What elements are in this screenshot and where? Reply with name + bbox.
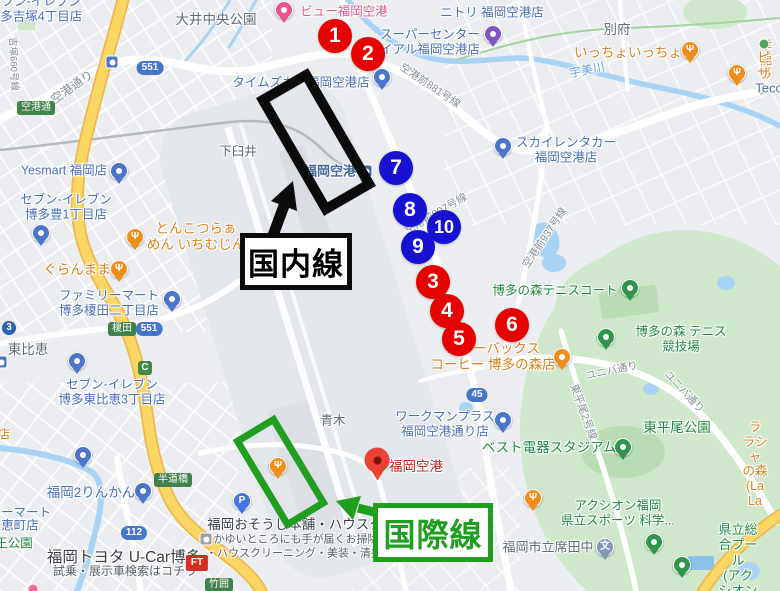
- numbered-marker-8: 8: [393, 193, 427, 227]
- numbered-marker-5: 5: [442, 322, 476, 356]
- numbered-markers-layer: 12781093456: [0, 0, 780, 591]
- numbered-marker-6: 6: [495, 308, 529, 342]
- numbered-marker-1: 1: [318, 19, 352, 53]
- numbered-marker-9: 9: [401, 230, 435, 264]
- map-canvas[interactable]: セブン-イレブン 博多吉塚4丁目店大井中央公園ビュー福岡空港ニトリ 福岡空港店別…: [0, 0, 780, 591]
- numbered-marker-7: 7: [379, 151, 413, 185]
- numbered-marker-2: 2: [351, 37, 385, 71]
